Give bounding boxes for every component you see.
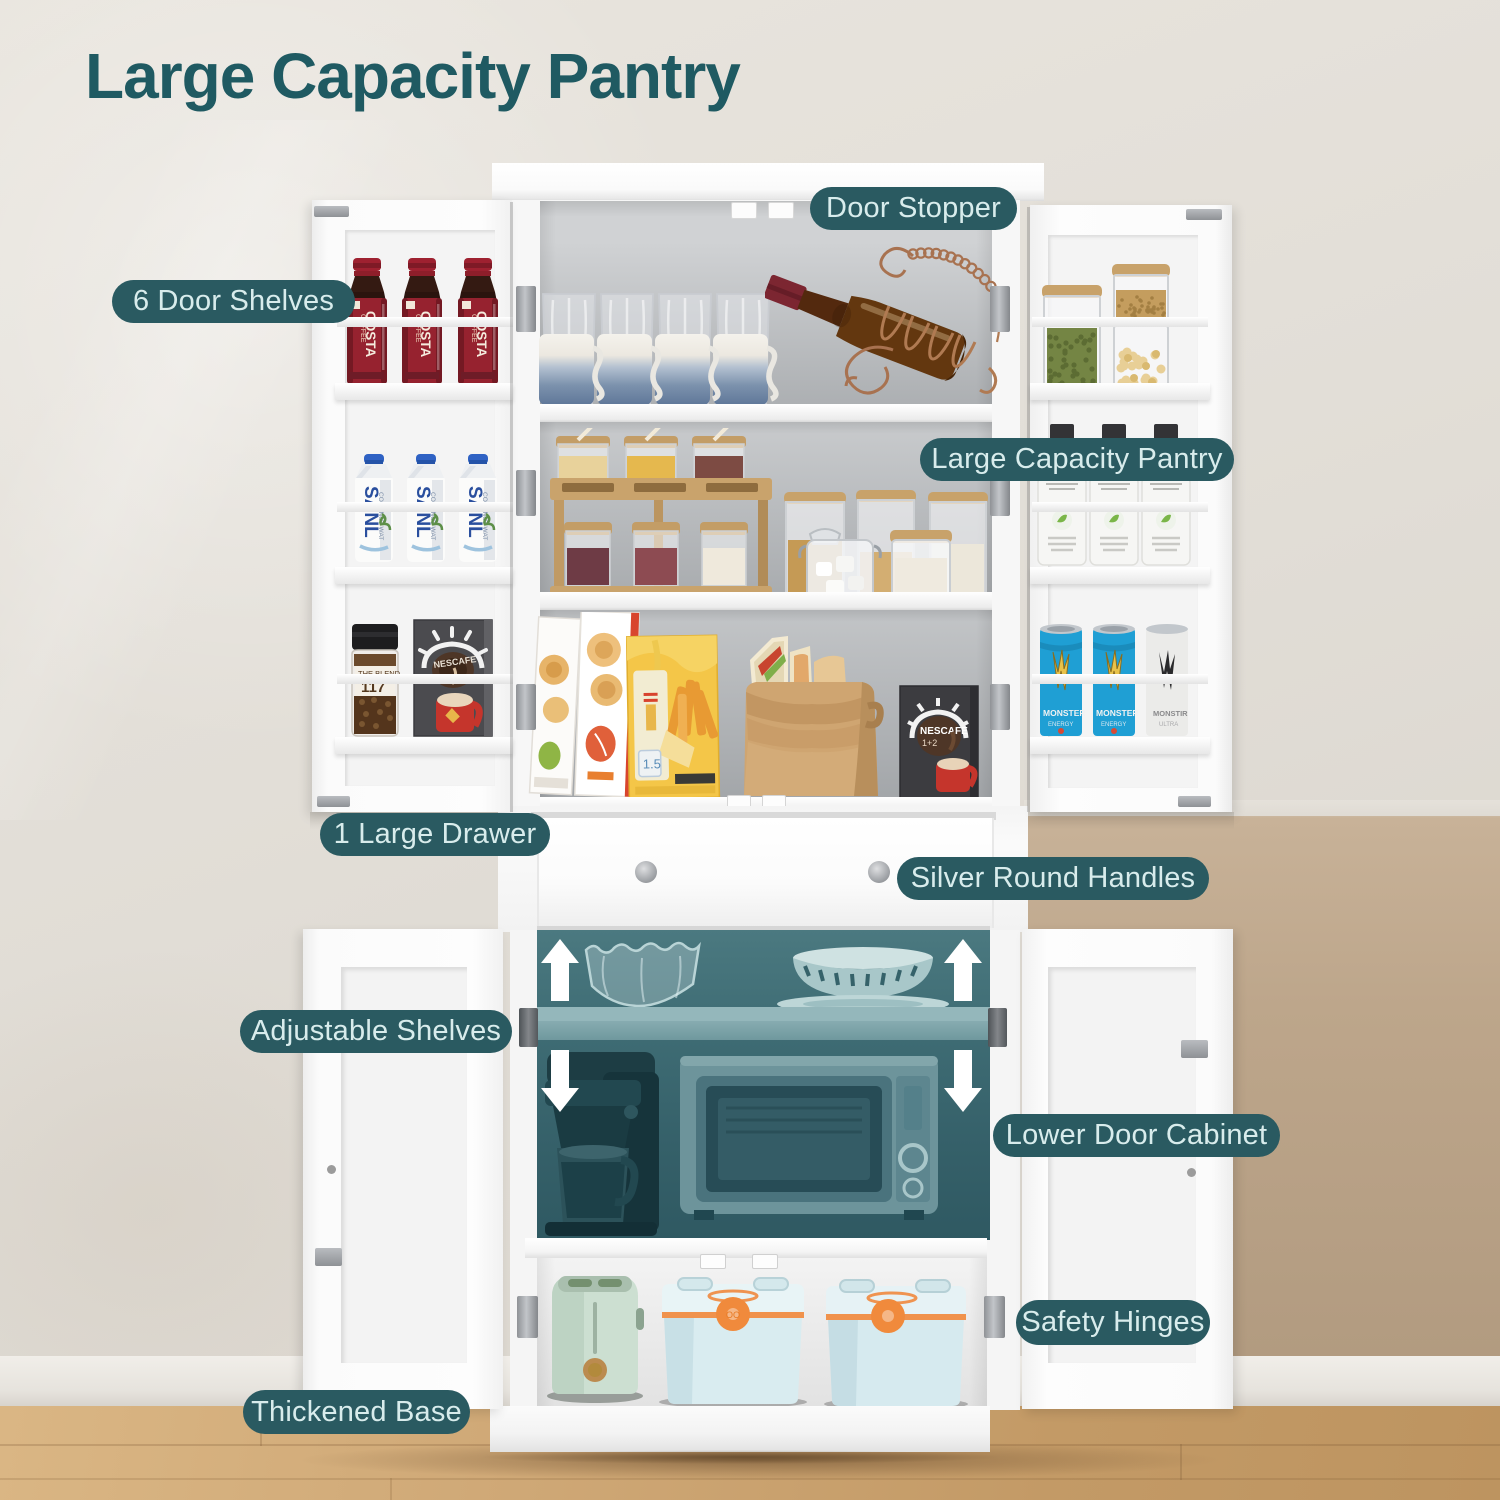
- svg-text:1.5: 1.5: [643, 756, 661, 771]
- svg-text:ULTRA: ULTRA: [1159, 722, 1178, 728]
- svg-text:OO: OO: [726, 1310, 740, 1320]
- svg-text:ENERGY: ENERGY: [1048, 722, 1073, 728]
- svg-text:NESCAFE: NESCAFE: [920, 726, 968, 737]
- svg-text:MONSTIR: MONSTIR: [1153, 709, 1188, 718]
- svg-text:MONSTER: MONSTER: [1043, 708, 1086, 718]
- svg-text:1+2: 1+2: [922, 738, 937, 748]
